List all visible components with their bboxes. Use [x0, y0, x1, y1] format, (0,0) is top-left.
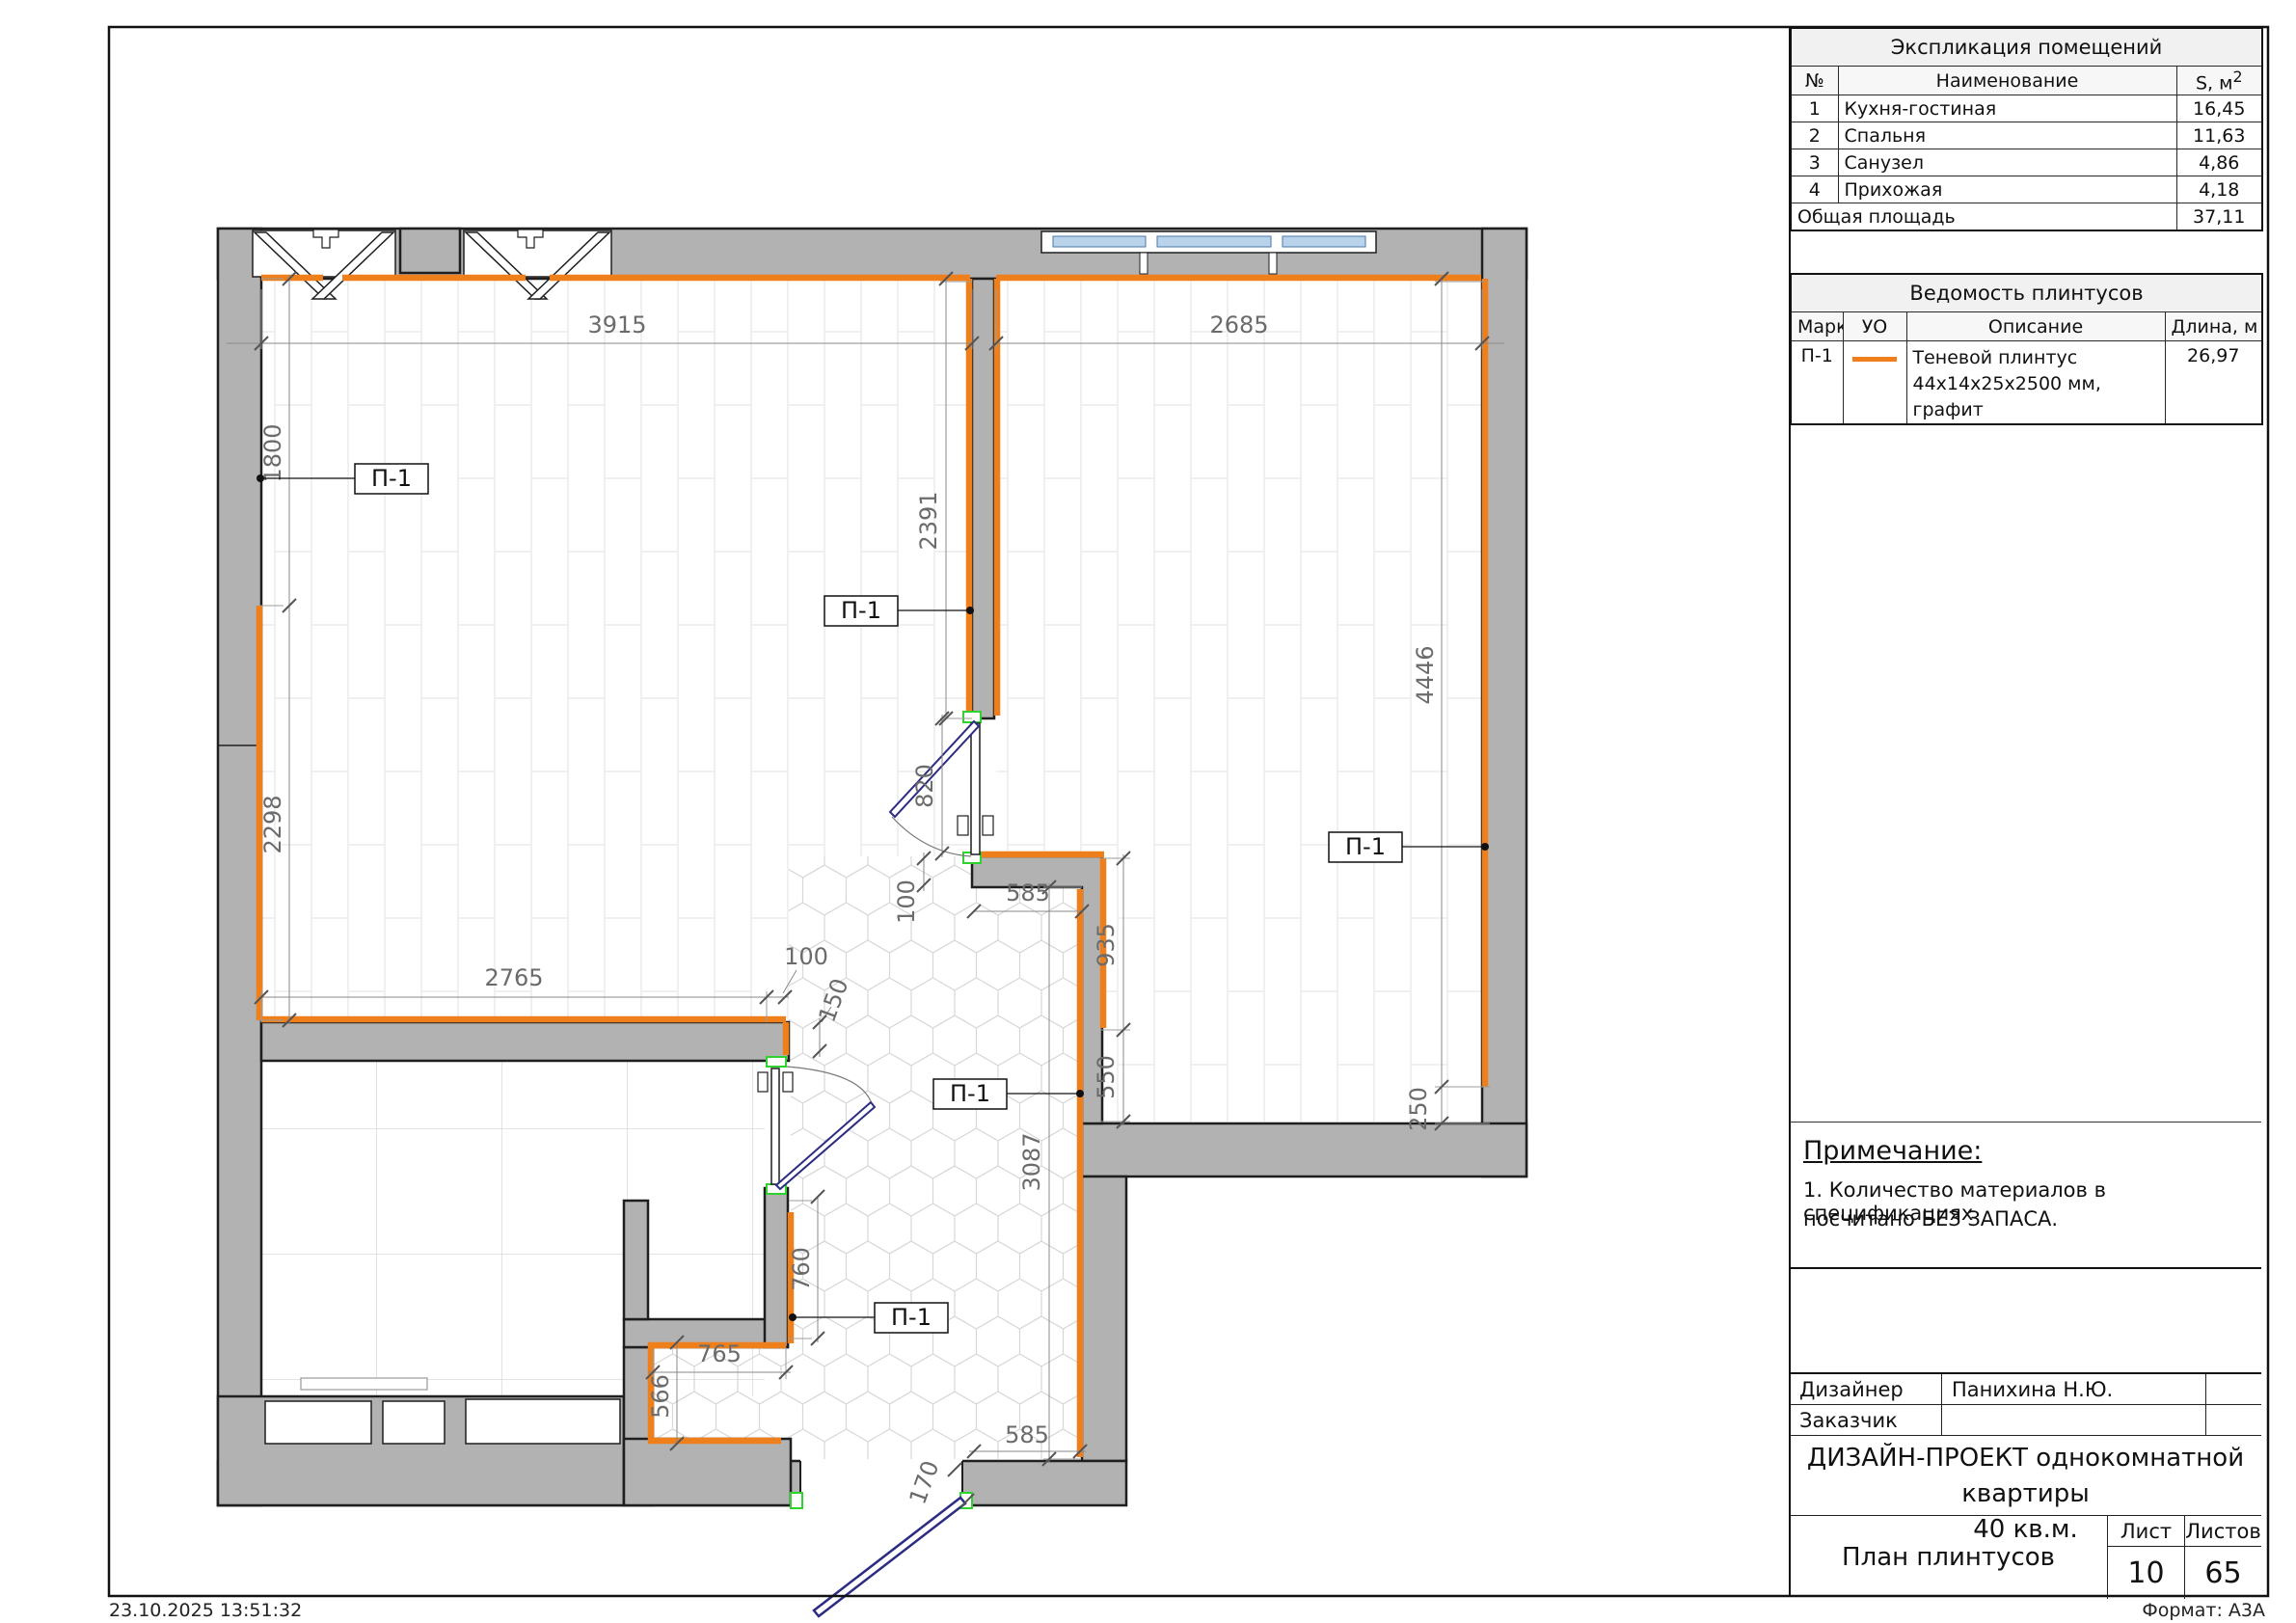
designer-name: Панихина Н.Ю.	[1942, 1374, 2206, 1404]
wall-bathdoor-bar	[765, 1188, 788, 1347]
dim-2765: 2765	[484, 964, 543, 991]
dim-550: 550	[1093, 1055, 1120, 1099]
glazing	[1053, 236, 1365, 247]
svg-text:П-1: П-1	[1345, 833, 1386, 860]
door-frame-icon	[963, 712, 981, 722]
client-name	[1942, 1405, 2206, 1435]
dim-935: 935	[1093, 923, 1120, 967]
total-row: Общая площадь37,11	[1791, 203, 2262, 231]
dim-585-hall: 585	[1006, 879, 1050, 906]
dim-100-chain: 100	[784, 943, 828, 970]
col-mark: Марка	[1791, 312, 1843, 341]
project-title: ДИЗАЙН-ПРОЕКТ однокомнатной квартиры 40 …	[1790, 1436, 2261, 1516]
col-uo: УО	[1843, 312, 1906, 341]
sheet-number: 10	[2108, 1547, 2185, 1599]
door-handle-icon	[958, 816, 968, 835]
entrance-door	[791, 1493, 972, 1616]
wall-bedroom-bottom	[1082, 1123, 1526, 1177]
client-label: Заказчик	[1790, 1405, 1942, 1435]
dim-2298: 2298	[259, 795, 286, 853]
door-frame-icon	[791, 1493, 802, 1508]
format-label: Формат: А3А	[2142, 1600, 2265, 1621]
wall-hall-right-lower	[1082, 1177, 1126, 1461]
dim-566: 566	[647, 1374, 674, 1419]
col-desc: Описание	[1906, 312, 2165, 341]
bathroom-vanity	[301, 1378, 427, 1390]
skirting-spec-table: Ведомость плинтусов Марка УО Описание Дл…	[1790, 273, 2263, 425]
dim-3915: 3915	[587, 311, 646, 338]
dim-4446: 4446	[1412, 645, 1439, 704]
svg-text:П-1: П-1	[841, 597, 881, 624]
svg-text:П-1: П-1	[950, 1080, 990, 1107]
door-handle-icon	[983, 816, 993, 835]
table-row: 2Спальня11,63	[1791, 122, 2262, 149]
note-title: Примечание:	[1803, 1136, 1982, 1166]
table-row: 4Прихожая4,18	[1791, 176, 2262, 203]
dim-820: 820	[911, 764, 938, 808]
wall-partition	[972, 279, 994, 718]
skirting-table-title: Ведомость плинтусов	[1791, 274, 2262, 312]
dim-250: 250	[1405, 1087, 1432, 1131]
svg-text:П-1: П-1	[371, 465, 412, 492]
dim-585-entry: 585	[1005, 1421, 1049, 1448]
skirting-swatch	[1852, 357, 1897, 362]
wall-ushape-left	[624, 1201, 648, 1319]
sheet-name: План плинтусов	[1790, 1516, 2108, 1599]
sheets-total: 65	[2185, 1547, 2261, 1599]
sheet-label: Лист	[2108, 1516, 2185, 1546]
window-pier	[400, 229, 460, 273]
dim-1800: 1800	[259, 423, 286, 482]
table-row: П-1 Теневой плинтус 44х14х25х2500 мм, гр…	[1791, 341, 2262, 425]
wall-right	[1482, 229, 1526, 1177]
door-handle-icon	[758, 1072, 768, 1092]
floor-finishes	[261, 279, 1482, 1459]
timestamp: 23.10.2025 13:51:32	[109, 1600, 302, 1621]
col-no: №	[1791, 67, 1838, 95]
dim-760: 760	[788, 1247, 815, 1291]
note-section: Примечание: 1. Количество материалов в с…	[1790, 1122, 2261, 1269]
dim-100-hall: 100	[893, 879, 920, 924]
door-leaf-closed	[771, 1068, 779, 1184]
door-handle-icon	[783, 1072, 793, 1092]
dim-765: 765	[697, 1340, 742, 1367]
note-line: посчитано БЕЗ ЗАПАСА.	[1803, 1207, 2058, 1231]
col-len: Длина, м	[2165, 312, 2262, 341]
sheets-label: Листов	[2185, 1516, 2261, 1546]
explication-title: Экспликация помещений	[1791, 28, 2262, 67]
door-leaf-closed	[971, 723, 980, 854]
table-row: 3Санузел4,86	[1791, 149, 2262, 176]
door-frame-icon	[767, 1057, 786, 1067]
col-name: Наименование	[1838, 67, 2176, 95]
svg-text:П-1: П-1	[891, 1304, 932, 1331]
dim-3087: 3087	[1018, 1132, 1045, 1191]
door-leaf-open	[814, 1498, 965, 1616]
right-panel: Экспликация помещений № Наименование S, …	[1790, 27, 2261, 1596]
designer-label: Дизайнер	[1790, 1374, 1942, 1404]
wall-kitchen-bottom	[261, 1022, 789, 1061]
dim-2685: 2685	[1209, 311, 1268, 338]
dim-2391: 2391	[915, 491, 942, 550]
wall-ducts	[265, 1399, 620, 1444]
wall-left	[218, 229, 261, 1505]
table-row: 1Кухня-гостиная16,45	[1791, 95, 2262, 122]
title-block: Дизайнер Панихина Н.Ю. Заказчик ДИЗАЙН-П…	[1790, 1372, 2261, 1598]
explication-table: Экспликация помещений № Наименование S, …	[1790, 27, 2263, 231]
wall-niche-bottom	[624, 1439, 791, 1505]
col-area: S, м2	[2176, 67, 2262, 95]
